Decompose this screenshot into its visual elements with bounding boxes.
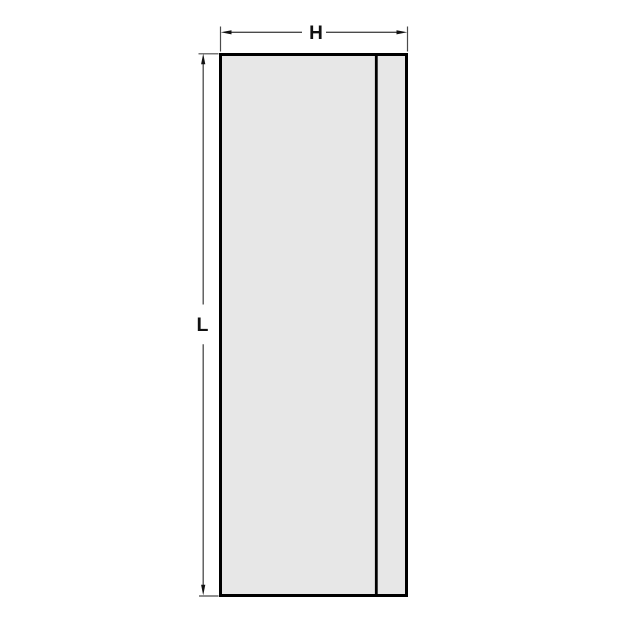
svg-text:H: H: [309, 23, 323, 44]
svg-text:L: L: [197, 314, 209, 336]
